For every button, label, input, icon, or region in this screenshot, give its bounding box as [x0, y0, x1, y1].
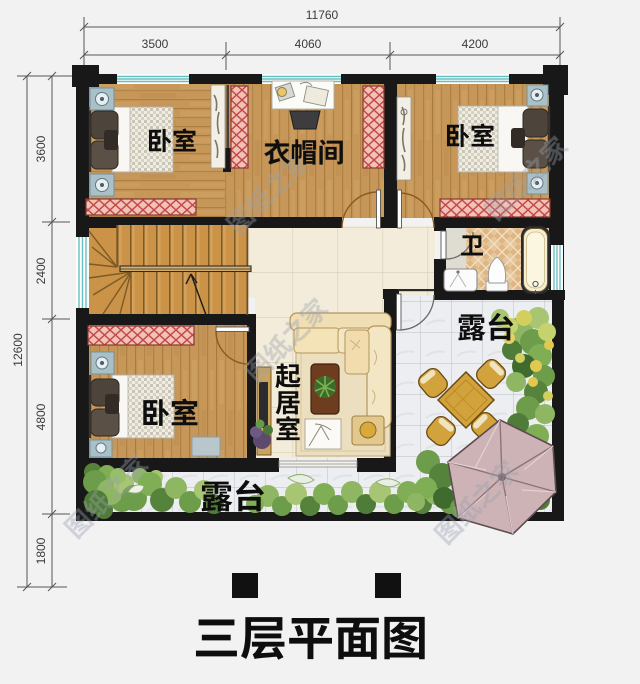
svg-text:4060: 4060 — [295, 37, 322, 51]
svg-text:4200: 4200 — [462, 37, 489, 51]
svg-text:2400: 2400 — [34, 257, 48, 284]
svg-text:3600: 3600 — [34, 135, 48, 162]
svg-text:4800: 4800 — [34, 403, 48, 430]
svg-text:11760: 11760 — [306, 8, 339, 22]
svg-text:3500: 3500 — [142, 37, 169, 51]
svg-text:12600: 12600 — [11, 333, 25, 367]
svg-text:1800: 1800 — [34, 537, 48, 564]
